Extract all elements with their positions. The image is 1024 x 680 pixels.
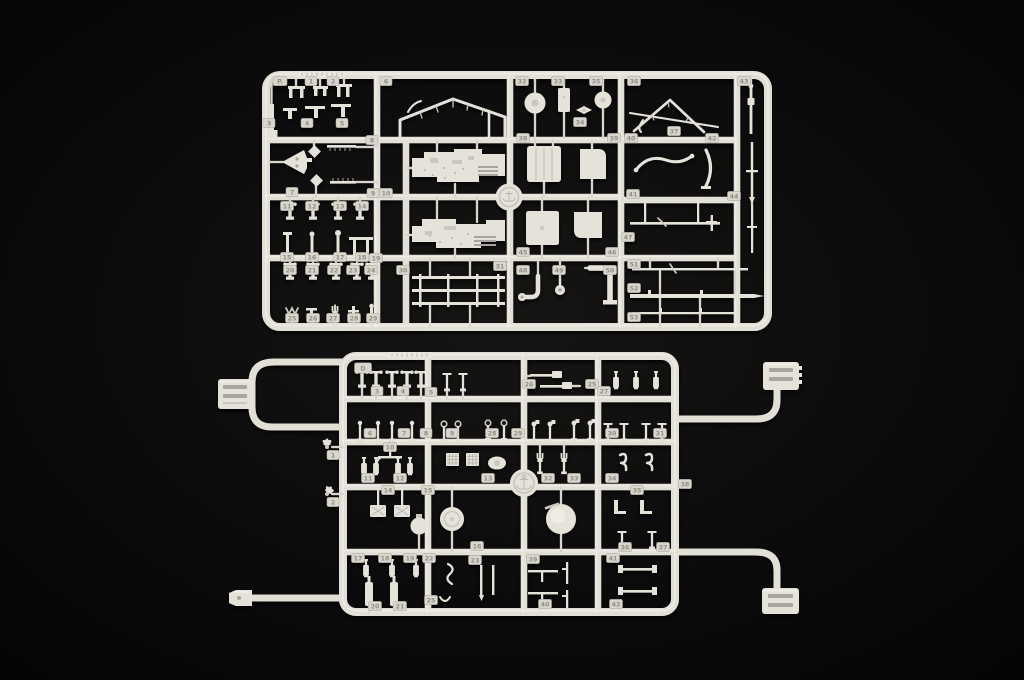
photo-stage: P. 1 2 6 32 33 35 36 43 3 4 5 8 34 37 38…	[0, 0, 1024, 680]
sprue-photo: P. 1 2 6 32 33 35 36 43 3 4 5 8 34 37 38…	[0, 0, 1024, 680]
